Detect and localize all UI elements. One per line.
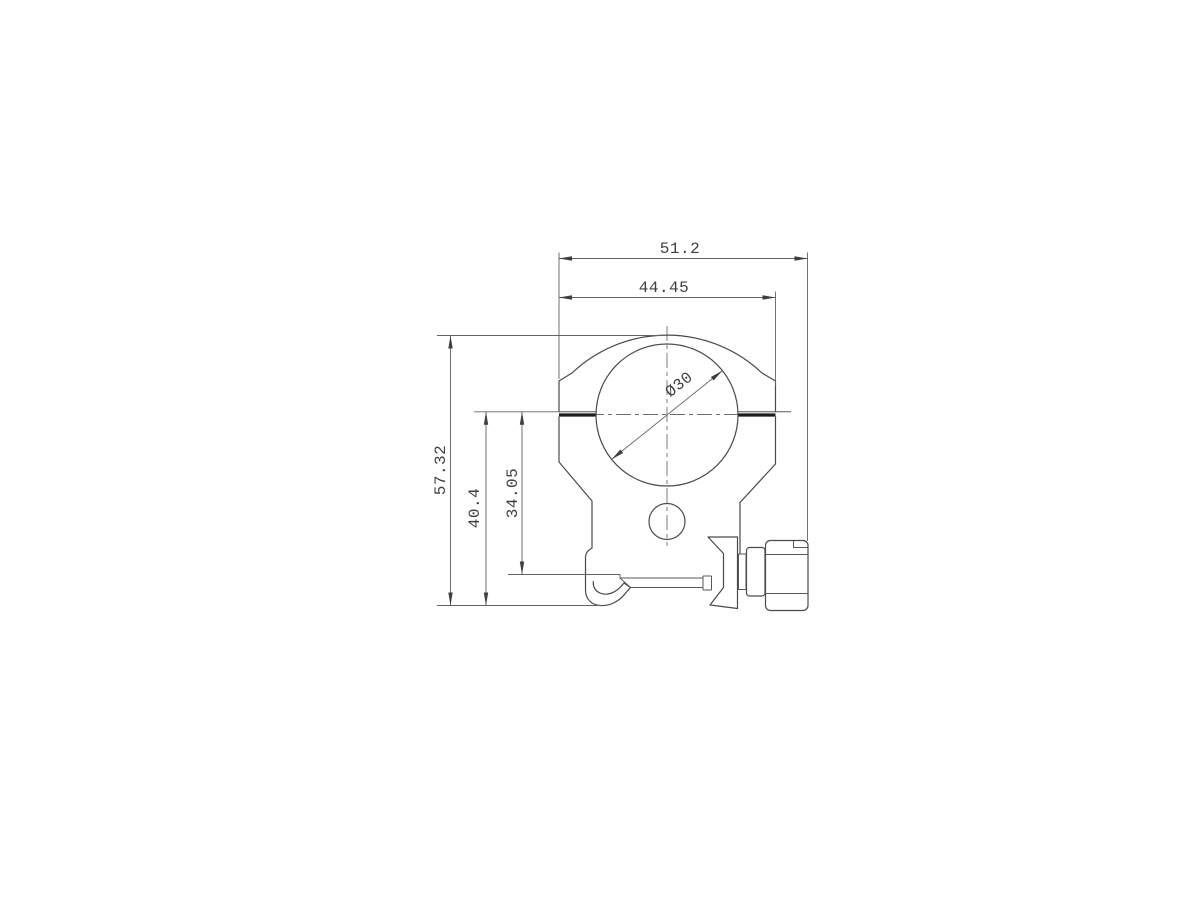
left-claw-outer: [586, 548, 631, 606]
arrow-cap-width-right: [763, 295, 776, 299]
bolt-washer: [747, 548, 766, 597]
dim-label-saddle-height: 34.05: [504, 468, 522, 519]
dim-label-base-height: 40.4: [466, 488, 484, 528]
arrow-total-width-left: [559, 256, 572, 260]
technical-drawing-page: 51.2 44.45 57.32 40.4 34.05 Ø30: [0, 0, 1200, 900]
clamp-plate-outline: [708, 537, 738, 609]
arrow-base-height-bottom: [484, 593, 488, 606]
dim-label-total-width: 51.2: [660, 240, 700, 258]
arrow-saddle-height-top: [520, 412, 524, 425]
arrow-base-height-top: [484, 412, 488, 425]
arrow-saddle-height-bottom: [520, 562, 524, 575]
drawing-canvas: 51.2 44.45 57.32 40.4 34.05 Ø30: [0, 0, 1200, 900]
base-right-outline: [740, 417, 776, 554]
dim-label-overall-height: 57.32: [432, 445, 450, 496]
arrow-cap-width-left: [559, 295, 572, 299]
left-claw-inner: [593, 582, 630, 595]
base-left-outline: [559, 417, 592, 548]
dim-label-cap-width: 44.45: [639, 279, 690, 297]
arrow-total-width-right: [795, 256, 808, 260]
arrow-overall-height-bottom: [448, 593, 452, 606]
channel-top-edge: [620, 575, 703, 579]
hex-nut-outline: [766, 541, 809, 611]
bolt-end-box: [703, 576, 712, 590]
hex-nut-chamfer-notch: [794, 541, 808, 548]
arrow-overall-height-top: [448, 336, 452, 349]
bolt-spacer: [739, 554, 747, 590]
